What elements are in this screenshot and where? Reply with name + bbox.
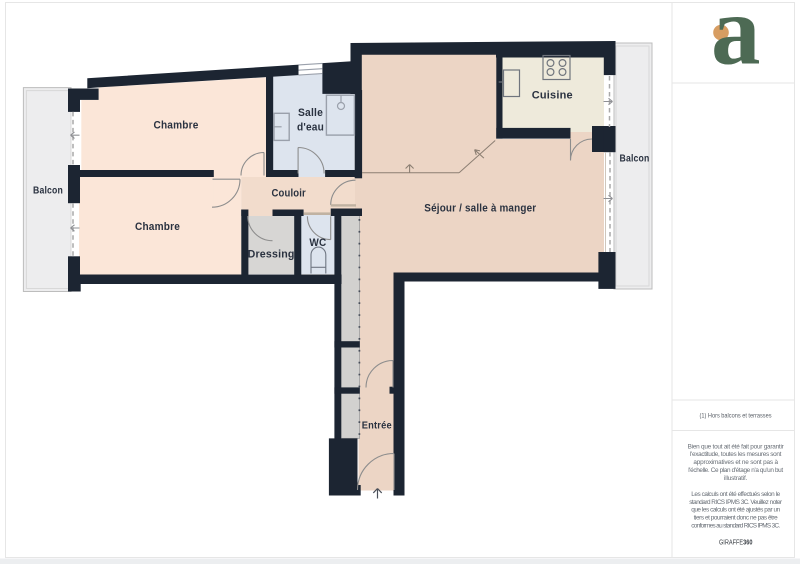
svg-text:(1) Hors balcons et terrasses: (1) Hors balcons et terrasses — [700, 412, 772, 419]
svg-text:Salle: Salle — [298, 107, 323, 119]
svg-text:conformes au standard RICS IPM: conformes au standard RICS IPMS 3C. — [691, 522, 780, 529]
svg-text:Dressing: Dressing — [248, 248, 295, 260]
svg-text:WC: WC — [309, 237, 326, 249]
svg-text:a: a — [711, 0, 761, 86]
svg-text:standard RICS IPMS 3C. Veuille: standard RICS IPMS 3C. Veuillez noter — [689, 499, 783, 506]
svg-text:Bien que tout ait été fait pou: Bien que tout ait été fait pour garantir — [688, 443, 785, 450]
svg-text:Chambre: Chambre — [154, 119, 199, 131]
svg-text:Couloir: Couloir — [271, 187, 306, 199]
svg-text:Chambre: Chambre — [135, 221, 180, 233]
svg-text:l'exactitude, toutes les mesur: l'exactitude, toutes les mesures sont — [690, 451, 782, 458]
svg-text:Entrée: Entrée — [362, 420, 392, 432]
svg-text:approximatives et ne sont pas: approximatives et ne sont pas à — [693, 459, 778, 466]
svg-text:GIRAFFE360: GIRAFFE360 — [719, 537, 753, 546]
svg-text:l'échelle. Ce plan d'étage n'a: l'échelle. Ce plan d'étage n'a qu'un but — [688, 467, 783, 474]
svg-text:Cuisine: Cuisine — [532, 89, 573, 101]
svg-text:que les calculs ont été ajusté: que les calculs ont été ajustés par un — [691, 507, 780, 514]
svg-text:Les calculs ont été effectués: Les calculs ont été effectués selon le — [691, 491, 780, 498]
svg-text:Balcon: Balcon — [33, 185, 63, 197]
svg-text:Balcon: Balcon — [620, 153, 650, 165]
svg-text:d'eau: d'eau — [297, 122, 324, 134]
svg-text:illustratif.: illustratif. — [724, 475, 748, 482]
svg-text:tiers et pourraient donc ne pa: tiers et pourraient donc ne pas être — [694, 515, 778, 522]
svg-text:Séjour / salle à manger: Séjour / salle à manger — [424, 202, 536, 214]
